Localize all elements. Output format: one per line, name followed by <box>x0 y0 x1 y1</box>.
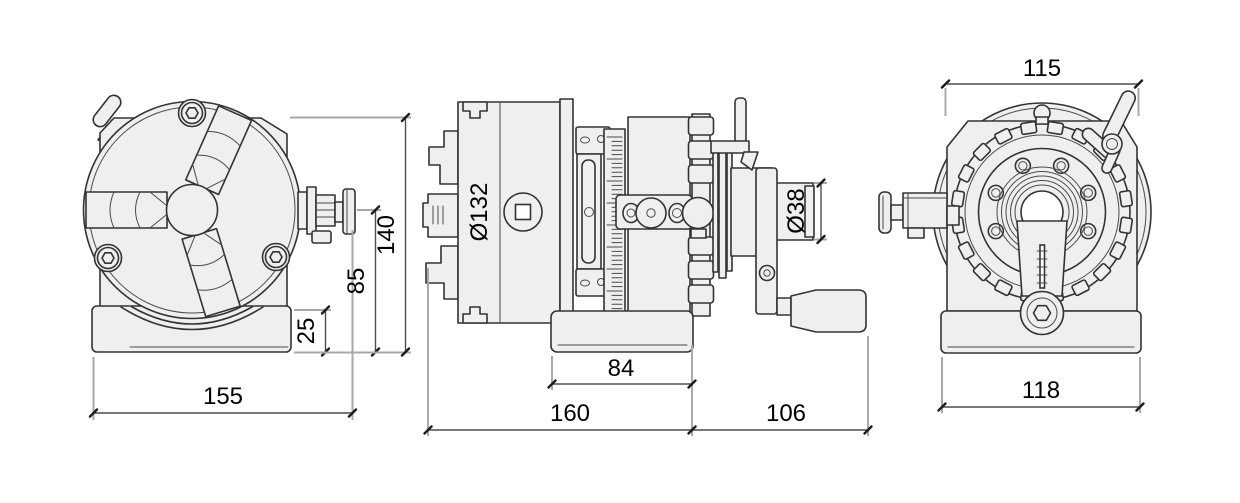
dim-38-label: Ø38 <box>783 188 810 233</box>
dim-25-label: 25 <box>293 318 320 345</box>
index-plunger-knob <box>636 198 666 228</box>
dimension-shaft-diameter: Ø38 <box>783 180 827 244</box>
worm-gear-hub <box>683 198 714 229</box>
dim-155-label: 155 <box>203 383 243 410</box>
chuck-jaw <box>86 192 167 228</box>
hex-socket-screw <box>179 100 206 127</box>
hex-socket-screw <box>95 245 122 272</box>
dim-85-label: 85 <box>343 268 370 295</box>
dim-chuck-diameter-label: Ø132 <box>466 183 493 242</box>
dimension-25: 25 <box>293 307 331 356</box>
dimension-118: 118 <box>939 357 1144 413</box>
front-view: 155 25 85 140 <box>84 93 412 420</box>
dim-140-label: 140 <box>373 215 400 255</box>
chuck-jaw-profile-mid <box>423 194 458 237</box>
dim-115-label: 115 <box>1023 55 1061 82</box>
sector-arm <box>1017 221 1067 335</box>
dim-118-label: 118 <box>1022 377 1060 404</box>
dim-106-label: 106 <box>766 400 806 427</box>
side-lock-knob <box>298 187 355 243</box>
chuck-jaw-profile-bottom <box>426 246 458 299</box>
crank-handle-grip <box>777 290 866 332</box>
dividing-head-drawing: 155 25 85 140 <box>0 0 1240 498</box>
chuck-jaw-profile-top <box>429 131 458 184</box>
dim-160-label: 160 <box>550 400 590 427</box>
side-view: Ø132 84 160 106 Ø38 <box>423 98 872 436</box>
side-base <box>551 311 693 352</box>
hex-socket-screw <box>263 244 290 271</box>
technical-drawing-page: 155 25 85 140 <box>0 0 1240 498</box>
rear-view: 115 118 <box>879 55 1151 413</box>
crank-arm <box>756 168 777 314</box>
back-plate <box>560 99 573 331</box>
dim-84-label: 84 <box>608 355 635 382</box>
chuck-center-boss <box>167 185 218 236</box>
lift-eye-icon <box>1034 105 1050 125</box>
